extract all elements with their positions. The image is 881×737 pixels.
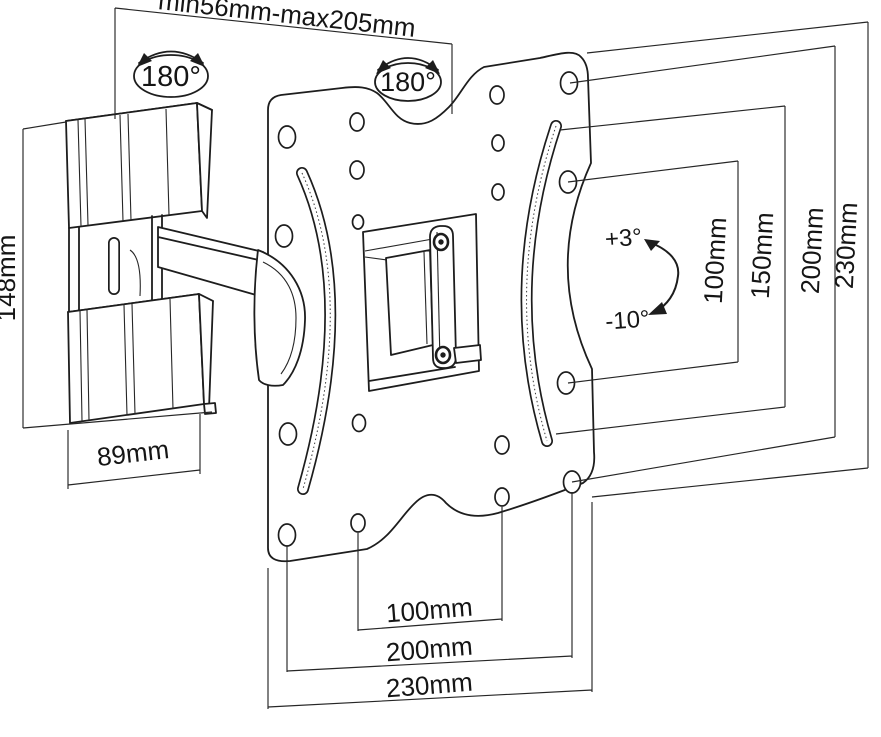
- dim-vertical-200-label: 200mm: [795, 206, 829, 294]
- wall-mount-diagram: min56mm-max205mm 148mm 89mm 100mm 150mm …: [0, 0, 881, 737]
- dim-horizontal-230-label: 230mm: [385, 667, 474, 704]
- dim-wall-height-label: 148mm: [0, 235, 21, 322]
- tilt-bracket: [363, 214, 481, 391]
- tilt-down-label: -10°: [604, 306, 650, 336]
- mounting-hole: [279, 126, 296, 148]
- wall-bracket-bottom-block: [68, 294, 216, 423]
- dim-vertical-150-label: 150mm: [745, 211, 779, 299]
- swivel-right-label: 180°: [380, 67, 436, 97]
- tilt-up-label: +3°: [604, 224, 643, 254]
- tilt-annotation: +3° -10°: [604, 224, 678, 336]
- swivel-left-label: 180°: [141, 61, 201, 93]
- mounting-hole: [279, 524, 296, 546]
- dim-vertical-100-label: 100mm: [698, 216, 732, 304]
- mounting-hole: [351, 514, 365, 532]
- diagram-canvas: min56mm-max205mm 148mm 89mm 100mm 150mm …: [0, 0, 881, 737]
- mounting-hole: [350, 161, 364, 179]
- mounting-hole: [350, 113, 364, 131]
- dim-wall-width-label: 89mm: [95, 434, 170, 472]
- mounting-hole: [492, 184, 504, 200]
- mounting-hole: [495, 436, 509, 454]
- swivel-annotation-left: 180°: [134, 52, 208, 98]
- mounting-hole: [276, 225, 293, 247]
- wall-bracket: [66, 103, 263, 423]
- mounting-hole: [490, 86, 504, 104]
- mounting-hole: [495, 488, 509, 506]
- wall-bracket-top-block: [66, 103, 212, 228]
- swivel-arm: [158, 227, 263, 297]
- mounting-hole: [492, 135, 504, 151]
- mounting-hole: [353, 415, 366, 432]
- dim-vertical-230-label: 230mm: [829, 201, 863, 289]
- wall-bracket-column: [69, 215, 162, 313]
- dim-vertical-100: 100mm: [568, 161, 738, 383]
- dim-wall-width: 89mm: [68, 414, 200, 489]
- dim-horizontal-100-label: 100mm: [385, 592, 474, 629]
- swivel-annotation-right: 180°: [375, 58, 441, 101]
- mounting-hole: [561, 72, 578, 94]
- mounting-hole: [280, 423, 297, 445]
- mounting-hole: [353, 215, 364, 229]
- dim-extension-range-label: min56mm-max205mm: [157, 0, 417, 43]
